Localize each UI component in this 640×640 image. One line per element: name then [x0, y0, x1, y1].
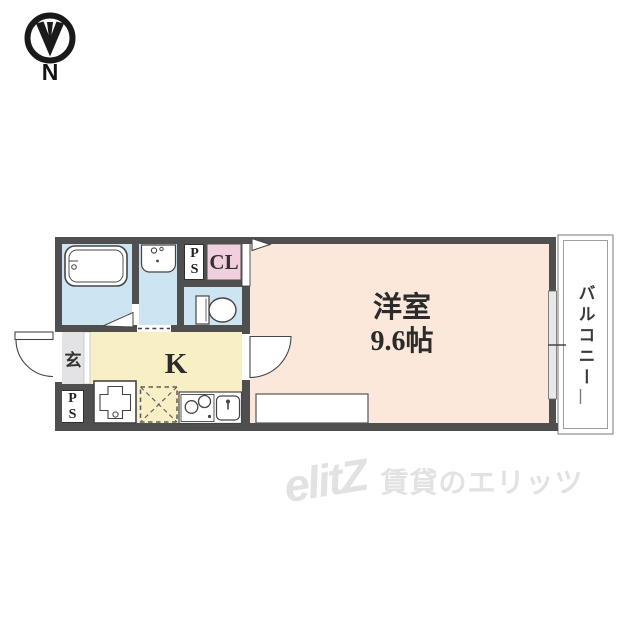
- washroom-sliding-entry: [137, 325, 171, 332]
- watermark-text: 賃貸のエリッツ: [381, 461, 584, 501]
- bathtub-icon: [65, 246, 127, 286]
- pipe-space-top-label: PS: [184, 245, 204, 279]
- main-room-size: 9.6帖: [370, 325, 433, 358]
- main-room-name: 洋室: [373, 292, 431, 325]
- entrance-label: 玄: [61, 344, 85, 372]
- stove-icon: [181, 395, 214, 422]
- balcony-label: バルコニー: [570, 248, 600, 424]
- compass-north-label: N: [36, 58, 64, 86]
- washbasin-icon: [142, 245, 176, 272]
- watermark-logo: elitZ: [280, 449, 370, 513]
- kitchen-sink-icon: [217, 396, 240, 420]
- toilet-icon: [196, 296, 236, 324]
- compass-icon: [28, 16, 73, 61]
- washer-pan-icon: [94, 381, 136, 423]
- closet-label: CL: [205, 245, 243, 279]
- floorplan-page: N PS CL 玄 PS K 洋室 9.6帖 バルコニー elitZ 賃貸のエリ…: [0, 0, 640, 640]
- watermark: elitZ 賃貸のエリッツ: [284, 446, 640, 516]
- pipe-space-bottom-label: PS: [60, 391, 84, 422]
- main-room-label: 洋室 9.6帖: [320, 292, 484, 358]
- kitchen-label: K: [146, 346, 206, 382]
- main-room-cabinet: [256, 394, 368, 423]
- kitchen-counter: [179, 392, 242, 424]
- entrance-door-arc: [15, 332, 62, 382]
